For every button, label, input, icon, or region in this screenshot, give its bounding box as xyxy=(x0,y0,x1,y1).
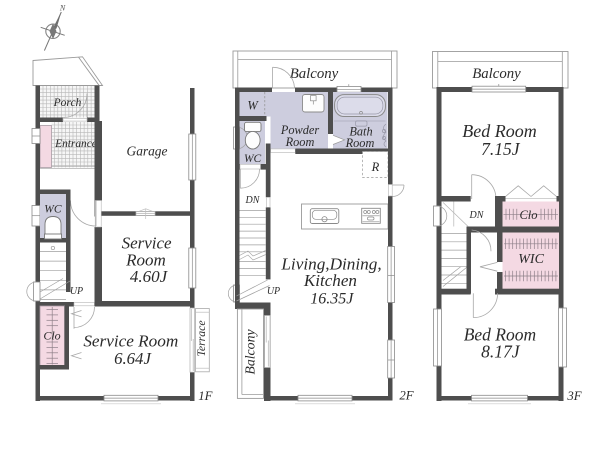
svg-text:W: W xyxy=(247,99,259,113)
svg-text:Bed Room: Bed Room xyxy=(462,121,536,141)
svg-text:Terrace: Terrace xyxy=(194,320,208,356)
svg-text:WC: WC xyxy=(244,153,262,165)
svg-text:Service Room: Service Room xyxy=(83,332,178,351)
svg-text:WIC: WIC xyxy=(518,252,544,267)
svg-text:1F: 1F xyxy=(198,389,212,403)
svg-text:DN: DN xyxy=(469,210,485,221)
svg-text:R: R xyxy=(371,160,380,174)
svg-text:Clo: Clo xyxy=(519,208,537,222)
svg-text:4.60J: 4.60J xyxy=(130,267,169,286)
svg-text:Room: Room xyxy=(285,135,315,149)
svg-text:WC: WC xyxy=(44,203,62,215)
svg-text:Kitchen: Kitchen xyxy=(303,271,357,290)
svg-text:N: N xyxy=(59,4,66,13)
svg-text:UP: UP xyxy=(70,286,83,297)
svg-text:Porch: Porch xyxy=(53,97,82,109)
svg-text:7.15J: 7.15J xyxy=(481,139,521,159)
svg-text:Entrance: Entrance xyxy=(54,138,97,150)
svg-text:Balcony: Balcony xyxy=(243,329,258,375)
svg-text:Room: Room xyxy=(345,136,375,150)
svg-text:2F: 2F xyxy=(399,389,413,403)
svg-text:6.64J: 6.64J xyxy=(114,349,152,368)
svg-text:3F: 3F xyxy=(566,389,581,403)
svg-text:Balcony: Balcony xyxy=(290,66,339,82)
svg-text:UP: UP xyxy=(267,286,280,297)
svg-text:Balcony: Balcony xyxy=(472,66,521,82)
svg-text:8.17J: 8.17J xyxy=(481,342,521,362)
svg-text:16.35J: 16.35J xyxy=(310,290,354,307)
svg-text:Garage: Garage xyxy=(127,144,168,159)
svg-text:DN: DN xyxy=(245,195,261,206)
svg-text:Clo: Clo xyxy=(43,328,60,342)
